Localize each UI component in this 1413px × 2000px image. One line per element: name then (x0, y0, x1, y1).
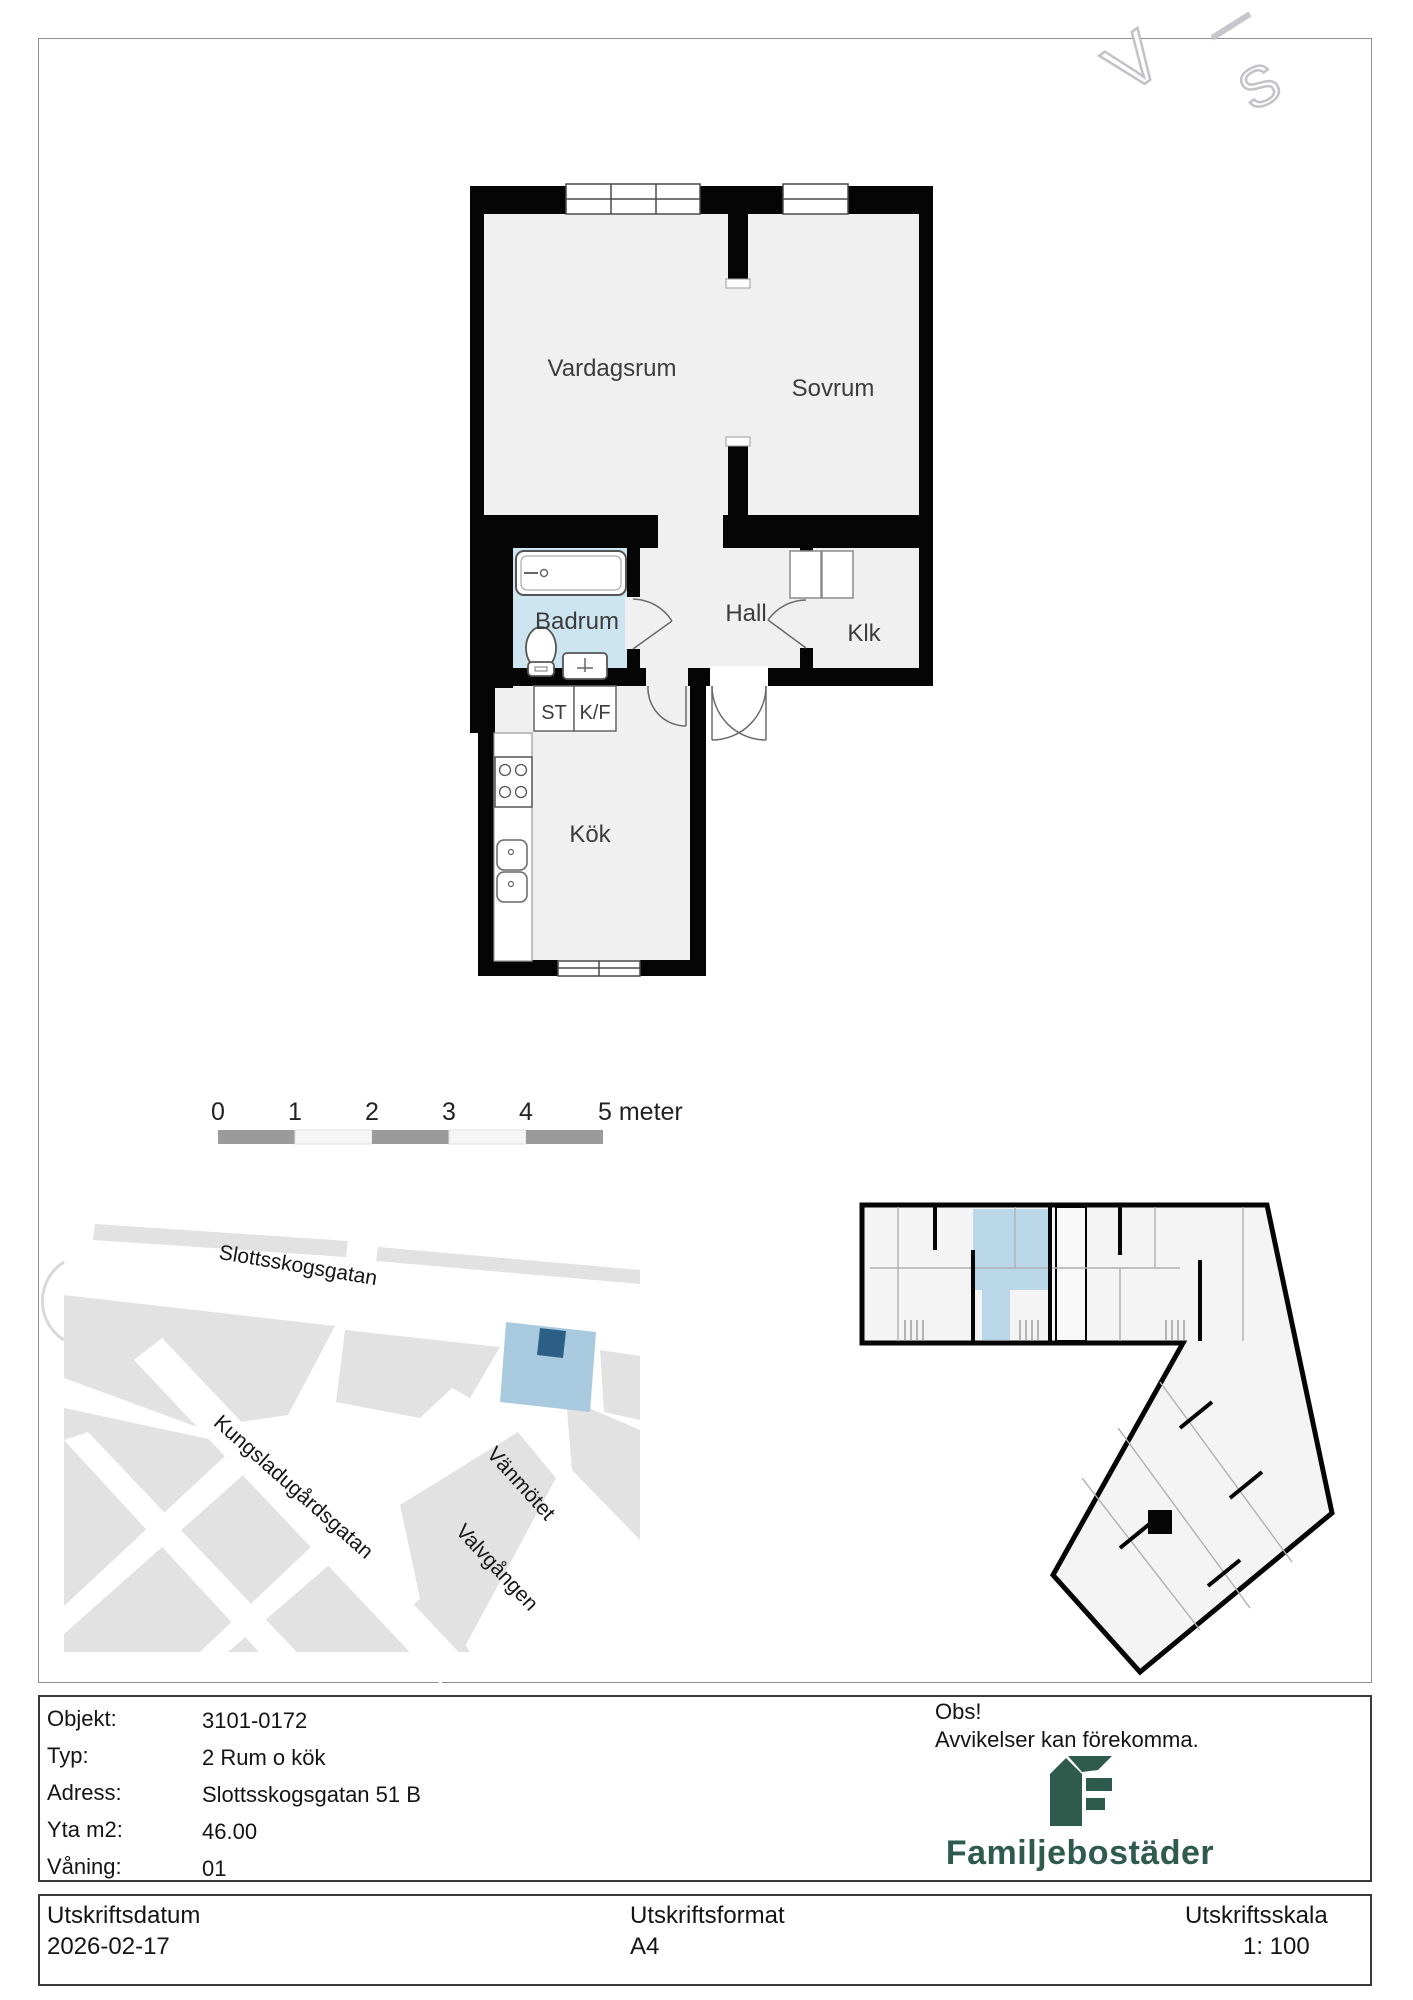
row-label: Objekt: (47, 1706, 117, 1732)
building-overview (862, 1205, 1332, 1672)
room-label-kf: K/F (579, 702, 610, 724)
notice: Obs! Avvikelser kan förekomma. (935, 1698, 1355, 1754)
room-label-sovrum: Sovrum (792, 375, 875, 402)
watermark-letter-v: V (1090, 16, 1176, 109)
klk-wardrobe (790, 551, 853, 598)
scale-bar: 0 1 2 3 4 5 meter (211, 1098, 683, 1144)
room-label-klk: Klk (847, 620, 881, 647)
stove (495, 757, 532, 807)
room-label-hall: Hall (725, 600, 766, 627)
notice-title: Obs! (935, 1698, 1355, 1726)
brand-wordmark: Familjebostäder (930, 1834, 1230, 1873)
map-unit-marker (537, 1328, 566, 1358)
row-value: 3101-0172 (202, 1708, 307, 1734)
footer-value: 1: 100 (1243, 1933, 1328, 1961)
bathtub (516, 551, 626, 595)
scale-end-label: 5 meter (598, 1098, 683, 1126)
bathroom-sink (563, 653, 607, 679)
scale-tick-0: 0 (211, 1098, 225, 1126)
footer-label: Utskriftsskala (1185, 1902, 1328, 1930)
watermark-letter-s: S (1228, 49, 1291, 122)
footer-label: Utskriftsformat (630, 1902, 785, 1930)
row-value: Slottsskogsgatan 51 B (202, 1782, 421, 1808)
row-value: 46.00 (202, 1819, 257, 1845)
scale-tick-2: 2 (365, 1098, 379, 1126)
floorplan-document: { "watermark": { "letters": ["V", "S"] }… (0, 0, 1413, 2000)
row-label: Våning: (47, 1854, 122, 1880)
table-row: Adress: Slottsskogsgatan 51 B (40, 1780, 1370, 1817)
scale-tick-1: 1 (288, 1098, 302, 1126)
footer-label: Utskriftsdatum (47, 1902, 200, 1930)
site-map: Slottsskogsgatan Kungsladugårdsgatan Vän… (42, 1224, 640, 1684)
footer-col-format: Utskriftsformat A4 (630, 1902, 785, 1961)
row-value: 01 (202, 1856, 226, 1882)
scale-tick-3: 3 (442, 1098, 456, 1126)
room-label-badrum: Badrum (535, 608, 619, 635)
row-label: Typ: (47, 1743, 89, 1769)
room-label-st: ST (541, 702, 567, 724)
row-label: Adress: (47, 1780, 122, 1806)
watermark: V S (1090, 14, 1290, 123)
footer-col-date: Utskriftsdatum 2026-02-17 (47, 1902, 200, 1961)
notice-body: Avvikelser kan förekomma. (935, 1726, 1355, 1754)
familjebostader-logo-icon (1042, 1750, 1116, 1830)
room-label-vardagsrum: Vardagsrum (548, 355, 677, 382)
footer-col-scale: Utskriftsskala 1: 100 (1185, 1902, 1328, 1961)
scale-tick-4: 4 (519, 1098, 533, 1126)
print-info-footer: Utskriftsdatum 2026-02-17 Utskriftsforma… (38, 1894, 1372, 1986)
footer-value: A4 (630, 1933, 785, 1961)
row-label: Yta m2: (47, 1817, 123, 1843)
row-value: 2 Rum o kök (202, 1745, 326, 1771)
room-label-kok: Kök (569, 821, 611, 848)
building-outline (862, 1205, 1332, 1672)
apartment-floorplan: Vardagsrum Sovrum Badrum Hall Klk ST K/F… (470, 184, 933, 976)
footer-value: 2026-02-17 (47, 1933, 200, 1961)
